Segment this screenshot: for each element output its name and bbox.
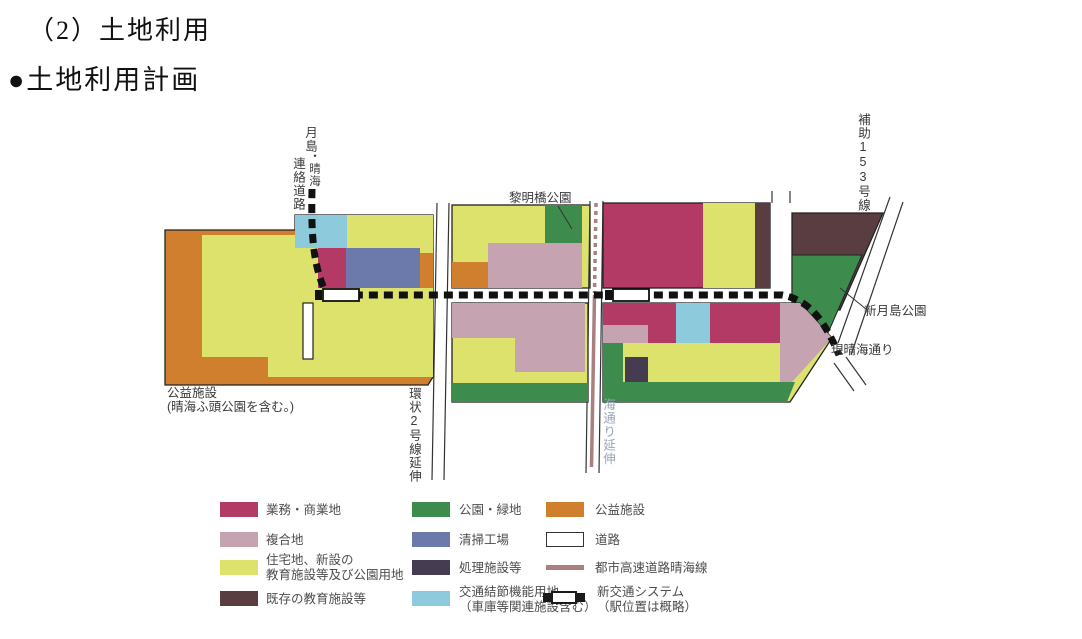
legend-label-residential: 住宅地、新設の 教育施設等及び公園用地 — [266, 553, 404, 583]
legend-label-new-transit-line2: （駅位置は概略） — [597, 600, 697, 615]
road-genharumi-cont-2 — [834, 363, 854, 391]
legend-chip-existing-edu — [220, 591, 258, 606]
label-kanjo2-extension: 環状2号線延伸 — [407, 387, 421, 483]
document-page: （2）土地利用 ●土地利用計画 — [0, 0, 1082, 639]
label-koeki-shisetsu-1: 公益施設 — [167, 386, 217, 400]
label-harumi-dori-extension: 海通り延伸 — [601, 398, 615, 466]
legend-label-park: 公園・緑地 — [459, 503, 522, 518]
legend-label-mixed: 複合地 — [266, 533, 304, 548]
legend-chip-expressway — [546, 565, 584, 570]
legend-chip-residential — [220, 560, 258, 575]
expressway-harumi-line — [592, 295, 595, 467]
legend-label-business: 業務・商業地 — [266, 503, 341, 518]
zone-mixed-mid-top — [488, 243, 582, 288]
legend-label-public-facility: 公益施設 — [595, 503, 645, 518]
legend-chip-public-facility — [546, 502, 584, 517]
legend-label-existing-edu: 既存の教育施設等 — [266, 592, 366, 607]
expressway-harumi-line-dashed — [595, 203, 597, 293]
zone-public-facility-mid — [452, 262, 488, 288]
zone-treatment-facility — [625, 357, 648, 385]
station-cap-right — [577, 593, 585, 602]
zone-mixed-mid-bottom-1 — [452, 303, 585, 338]
label-tsukishima-road-1: 月島 — [303, 126, 317, 153]
legend-label-residential-line1: 住宅地、新設の — [266, 553, 404, 568]
road-kanjo2-right-edge — [444, 203, 449, 480]
zone-park-strip-east — [603, 382, 795, 402]
zone-park-column-east — [603, 343, 623, 382]
zone-residential-west-top — [347, 215, 433, 248]
legend-chip-mixed — [220, 532, 258, 547]
label-gen-harumi-dori: 現晴海通り — [831, 343, 894, 357]
legend-label-new-transit: 新交通システム （駅位置は概略） — [597, 585, 697, 615]
road-genharumi-cont-1 — [846, 357, 866, 385]
station-box — [551, 591, 577, 604]
transit-station-cap-2 — [605, 290, 612, 300]
label-koeki-shisetsu-2: (晴海ふ頭公園を含む。) — [167, 400, 294, 414]
legend-chip-road — [546, 532, 584, 547]
zone-mixed-east-small — [603, 325, 648, 343]
legend-label-treatment: 処理施設等 — [459, 561, 522, 576]
zone-transport-node-west — [295, 215, 347, 248]
legend-label-expressway: 都市高速道路晴海線 — [595, 561, 708, 576]
legend-chip-cleaning-plant — [412, 532, 450, 547]
zone-transport-node-east — [676, 303, 710, 343]
subsection-title: ●土地利用計画 — [8, 58, 200, 97]
legend-chip-business — [220, 502, 258, 517]
legend-chip-park — [412, 502, 450, 517]
zone-reimeibashi-park — [545, 205, 582, 245]
zone-mixed-mid-bottom-2 — [515, 338, 585, 372]
zone-residential-west-bottom — [268, 357, 433, 377]
legend-label-residential-line2: 教育施設等及び公園用地 — [266, 568, 404, 583]
label-tsukishima-road-3: ・晴海 — [307, 150, 321, 188]
label-hojo-153: 補助153号線 — [856, 113, 870, 212]
zone-cleaning-plant — [346, 248, 420, 288]
transit-station-1 — [323, 289, 359, 301]
legend-chip-treatment — [412, 560, 450, 575]
legend-label-new-transit-line1: 新交通システム — [597, 585, 697, 600]
legend-chip-transport-node — [412, 591, 450, 606]
label-shin-tsukishima-park: 新月島公園 — [864, 304, 927, 318]
station-cap-left — [543, 593, 551, 602]
zone-public-facility-small — [420, 253, 433, 288]
zone-residential-east-top — [703, 203, 755, 288]
land-use-map-canvas — [140, 105, 940, 505]
legend-label-road: 道路 — [595, 533, 620, 548]
road-stub-west — [303, 303, 313, 359]
zone-park-strip-mid — [452, 383, 588, 402]
transit-station-cap-1 — [315, 290, 322, 300]
section-title: （2）土地利用 — [28, 10, 211, 47]
label-reimeibashi-park: 黎明橋公園 — [509, 191, 572, 205]
land-use-map: 月島 ・晴海 連絡道路 黎明橋公園 補助153号線 新月島公園 現晴海通り 公益… — [140, 105, 940, 505]
zone-existing-edu-small — [755, 203, 770, 288]
legend-label-cleaning-plant: 清掃工場 — [459, 533, 509, 548]
transit-station-2 — [613, 289, 649, 301]
legend-chip-new-transit — [543, 591, 585, 604]
label-tsukishima-road-2: 連絡道路 — [291, 157, 305, 211]
